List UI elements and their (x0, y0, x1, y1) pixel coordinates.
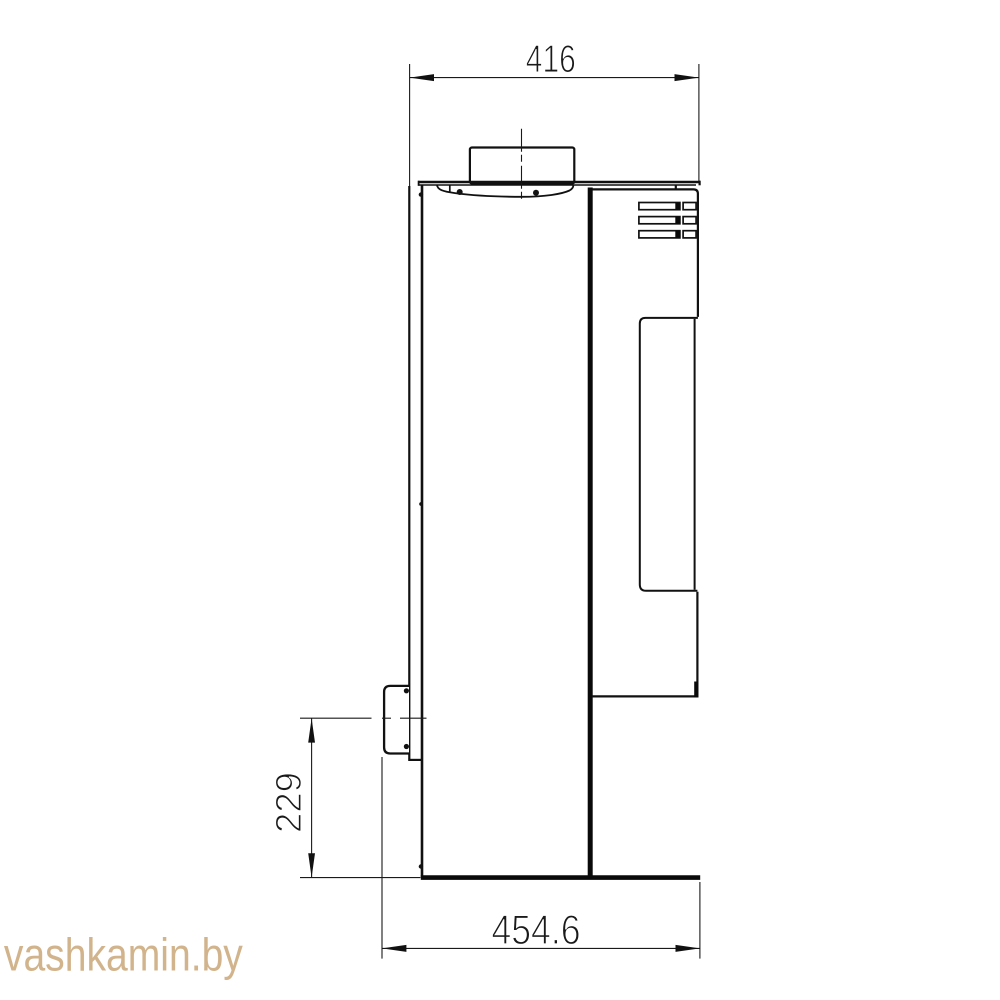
svg-text:229: 229 (268, 772, 309, 833)
svg-text:vashkamin.by: vashkamin.by (4, 930, 244, 982)
svg-text:454.6: 454.6 (492, 906, 581, 953)
svg-text:416: 416 (526, 38, 576, 81)
